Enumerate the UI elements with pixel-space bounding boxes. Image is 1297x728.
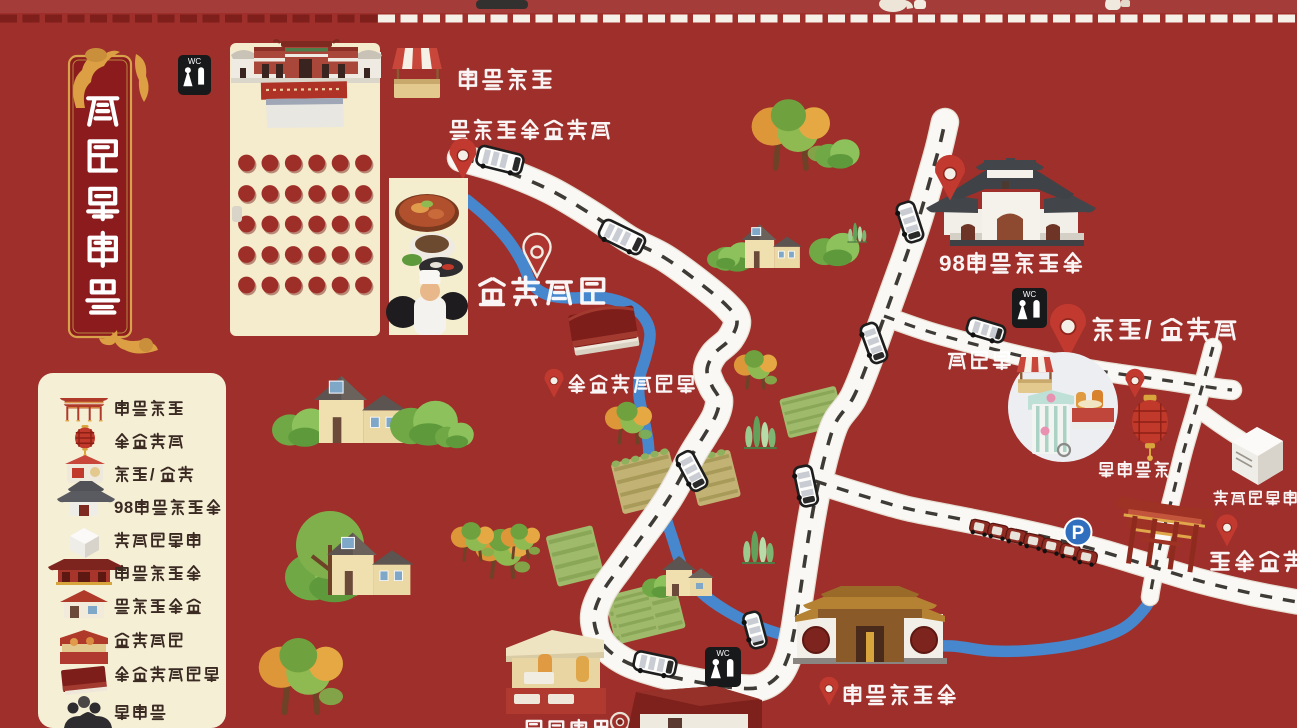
svg-text:9: 9	[114, 498, 123, 517]
svg-text:/: /	[1145, 316, 1152, 344]
svg-text:/: /	[150, 465, 155, 484]
svg-text:8: 8	[124, 498, 133, 517]
svg-text:WC: WC	[188, 57, 202, 66]
svg-text:WC: WC	[1023, 290, 1037, 299]
svg-text:8: 8	[952, 251, 965, 276]
svg-text:WC: WC	[716, 649, 730, 658]
svg-text:P: P	[1072, 523, 1085, 544]
svg-text:9: 9	[939, 251, 952, 276]
